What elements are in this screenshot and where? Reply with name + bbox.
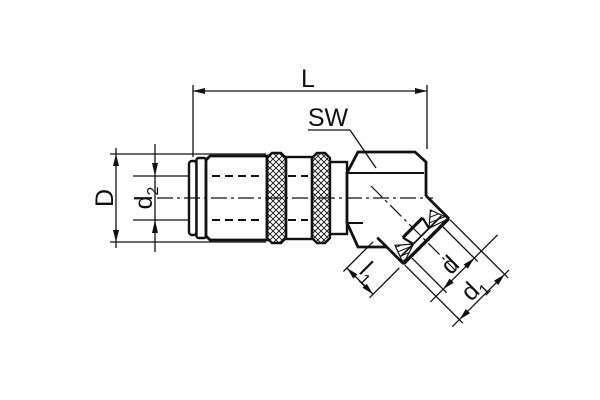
dim-label-l1: l1 [351, 257, 384, 290]
dim-label-d2: d2 [130, 187, 162, 210]
dim-label-D: D [91, 189, 119, 207]
dim-label-L: L [301, 65, 315, 93]
dim-label-d1: d1 [456, 271, 495, 310]
coupling-body [157, 152, 455, 270]
dim-label-SW: SW [308, 104, 349, 132]
technical-drawing: L SW D d2 [0, 0, 600, 400]
technical-drawing-page: L SW D d2 [0, 0, 600, 400]
dim-label-d: d [435, 250, 465, 280]
